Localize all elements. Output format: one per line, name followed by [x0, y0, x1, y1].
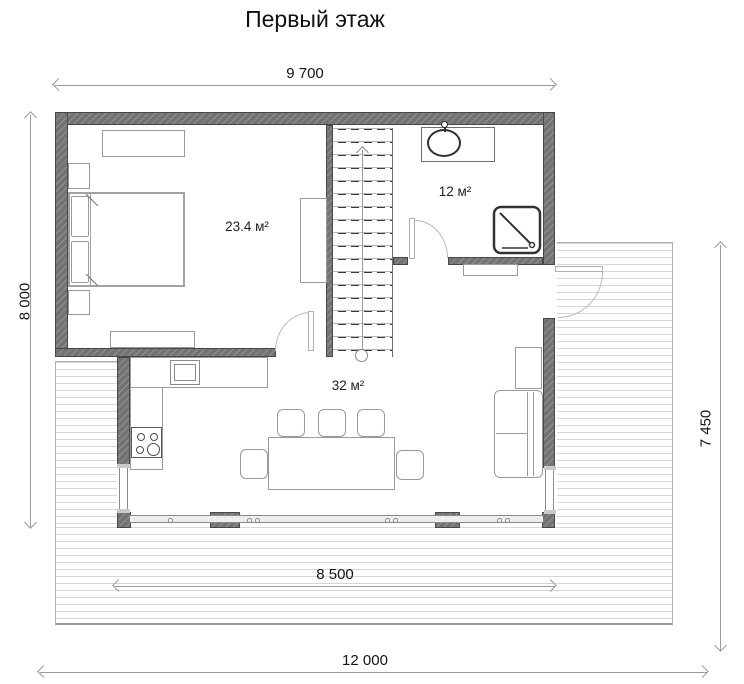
glazing-dot [497, 518, 502, 523]
dimension-label-total: 12 000 [315, 652, 415, 669]
bathroom-door-arc [415, 220, 448, 258]
dimension-label-right: 7 450 [698, 384, 715, 474]
bathroom-area-label: 12 м² [405, 184, 505, 199]
glazing-dot [168, 518, 173, 523]
dresser-bottom [110, 331, 195, 348]
arrowhead-right-icon [544, 78, 557, 91]
stove [131, 427, 162, 458]
arrowhead-right-icon [696, 665, 709, 678]
chair [277, 409, 305, 437]
blanket-fold-mark [86, 274, 98, 286]
kitchen-sink [170, 360, 200, 385]
terrace-left [55, 361, 117, 527]
window-right [545, 470, 554, 514]
bed-headboard-line [90, 193, 91, 286]
wall-kitchen-left [117, 357, 130, 468]
wall-right-upper [543, 112, 555, 265]
dimension-line-top [55, 85, 555, 86]
wall-post-left-corner [117, 512, 131, 528]
glazing-dot [247, 518, 252, 523]
wall-right-lower [543, 318, 555, 468]
wall-bedroom-bottom [55, 348, 276, 357]
shower-icon [492, 205, 542, 255]
stairs-direction-line [362, 150, 363, 350]
dresser-top [102, 130, 185, 157]
wall-stairs-left [326, 125, 333, 357]
arrowhead-up-icon [24, 111, 37, 124]
wall-post-right-corner [542, 512, 555, 528]
dining-table [268, 437, 395, 490]
bathroom-step [463, 264, 518, 276]
window-left [119, 468, 128, 513]
dimension-label-left: 8 000 [17, 257, 34, 347]
window-band-bottom [130, 515, 543, 523]
arrowhead-down-icon [714, 639, 727, 652]
dimension-line-terrace [115, 586, 555, 587]
chair [396, 450, 424, 480]
window-cap [544, 510, 556, 514]
arrowhead-up-icon [714, 241, 727, 254]
bedroom-area-label: 23.4 м² [197, 219, 297, 234]
dimension-label-top: 9 700 [255, 65, 355, 82]
chair [240, 449, 268, 479]
wall-top [55, 112, 555, 125]
glazing-dot [393, 518, 398, 523]
sofa-seat-line [496, 433, 528, 434]
faucet-stem [444, 127, 446, 132]
nightstand-a [68, 163, 90, 189]
wardrobe [300, 198, 327, 283]
wall-left [55, 112, 68, 357]
floor-plan: Первый этаж [0, 0, 744, 684]
sofa-back-line [533, 392, 534, 476]
shower [492, 205, 542, 255]
bathroom-door-leaf [409, 218, 415, 259]
chair [318, 409, 346, 437]
bathroom-sink [427, 129, 461, 157]
bedroom-door-leaf [308, 311, 314, 351]
burner-icon [150, 433, 158, 441]
dimension-line-right [720, 245, 721, 650]
stairs-start-circle [355, 349, 368, 362]
window-cap [117, 509, 130, 513]
sofa-back-line [527, 392, 528, 476]
dimension-line-total [40, 672, 707, 673]
burner-icon [137, 433, 145, 441]
nightstand-b [68, 290, 90, 315]
chair [357, 409, 385, 437]
dimension-label-terrace: 8 500 [285, 566, 385, 583]
arrowhead-down-icon [24, 516, 37, 529]
stairs [333, 128, 393, 357]
page-title: Первый этаж [93, 6, 537, 33]
sofa [494, 390, 543, 478]
arrowhead-left-icon [37, 665, 50, 678]
arrowhead-left-icon [52, 78, 65, 91]
glazing-dot [255, 518, 260, 523]
entry-door-leaf [555, 266, 603, 272]
living-room-area-label: 32 м² [298, 378, 398, 393]
burner-icon [147, 443, 160, 456]
glazing-dot [505, 518, 510, 523]
side-table [515, 347, 542, 389]
wall-bathroom-stub [393, 257, 408, 265]
burner-icon [136, 446, 144, 454]
blanket-fold-mark [86, 194, 98, 206]
kitchen-sink-basin [174, 364, 196, 381]
bedroom-door-arc [275, 312, 311, 351]
glazing-dot [385, 518, 390, 523]
